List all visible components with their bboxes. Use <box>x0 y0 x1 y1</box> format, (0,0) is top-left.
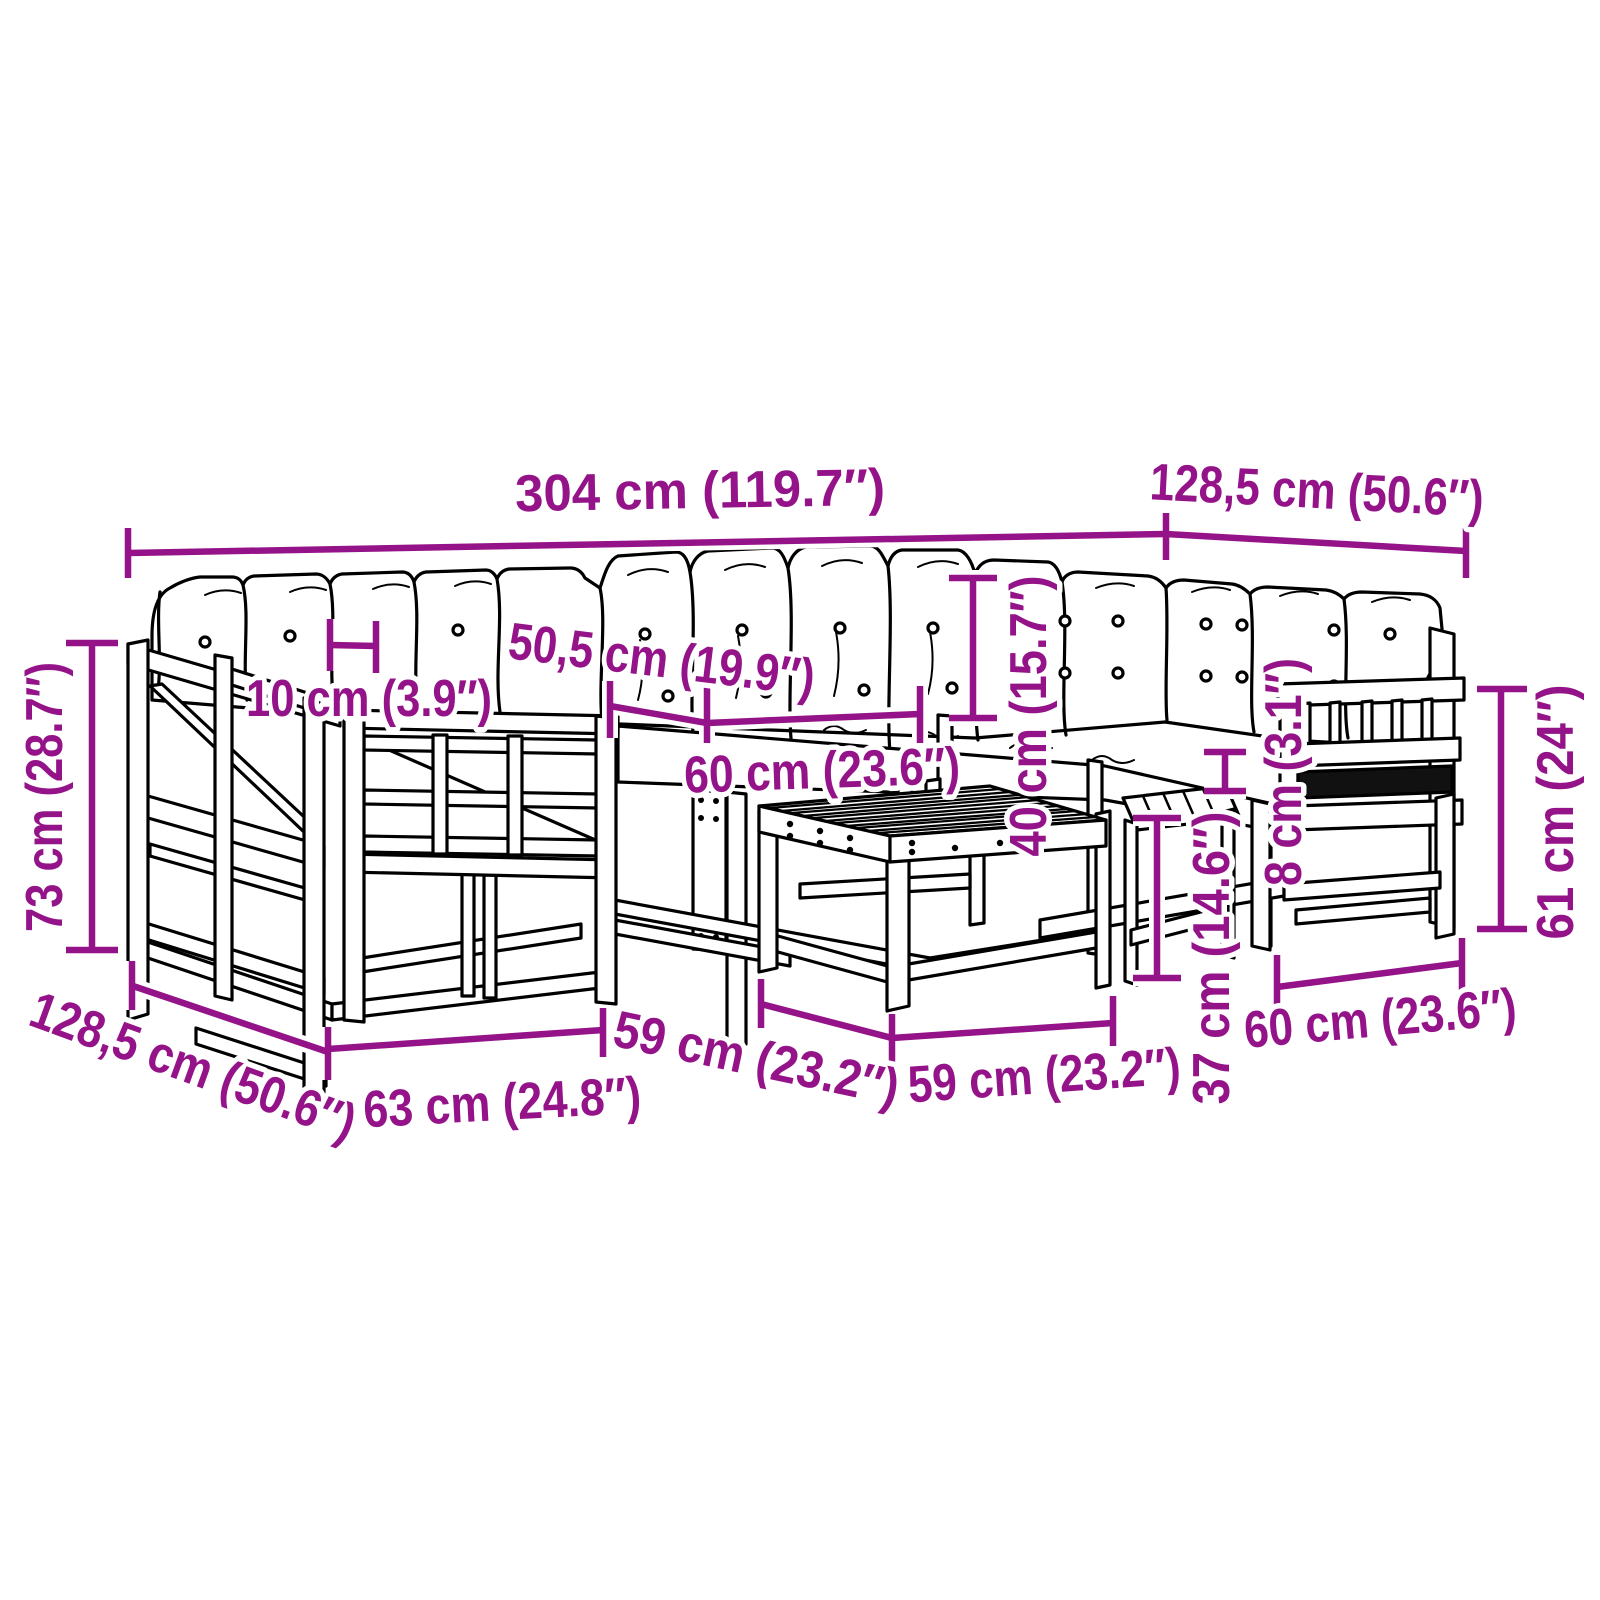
svg-text:304 cm (119.7″): 304 cm (119.7″) <box>515 459 886 523</box>
svg-text:40 cm (15.7″): 40 cm (15.7″) <box>1000 576 1058 857</box>
svg-text:37 cm (14.6″): 37 cm (14.6″) <box>1183 812 1241 1105</box>
svg-text:60 cm (23.6″): 60 cm (23.6″) <box>683 737 961 805</box>
svg-text:61 cm (24″): 61 cm (24″) <box>1527 685 1585 940</box>
svg-text:10 cm (3.9″): 10 cm (3.9″) <box>246 670 492 728</box>
svg-text:8 cm (3.1″): 8 cm (3.1″) <box>1255 658 1313 886</box>
svg-text:73 cm (28.7″): 73 cm (28.7″) <box>16 662 74 932</box>
